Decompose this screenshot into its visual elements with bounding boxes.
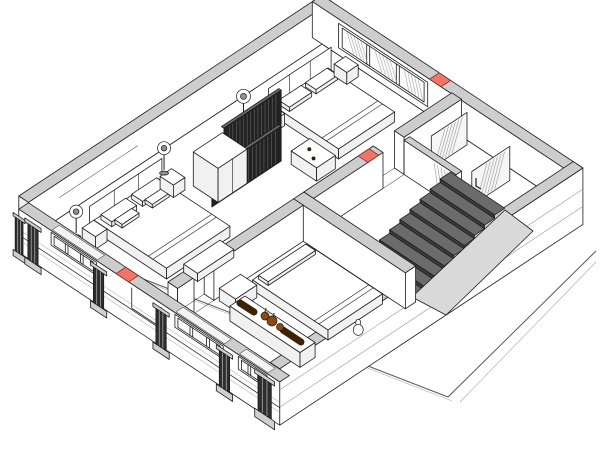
isometric-floorplan-canvas (0, 0, 600, 450)
floor-plan-3d-view (0, 0, 600, 450)
